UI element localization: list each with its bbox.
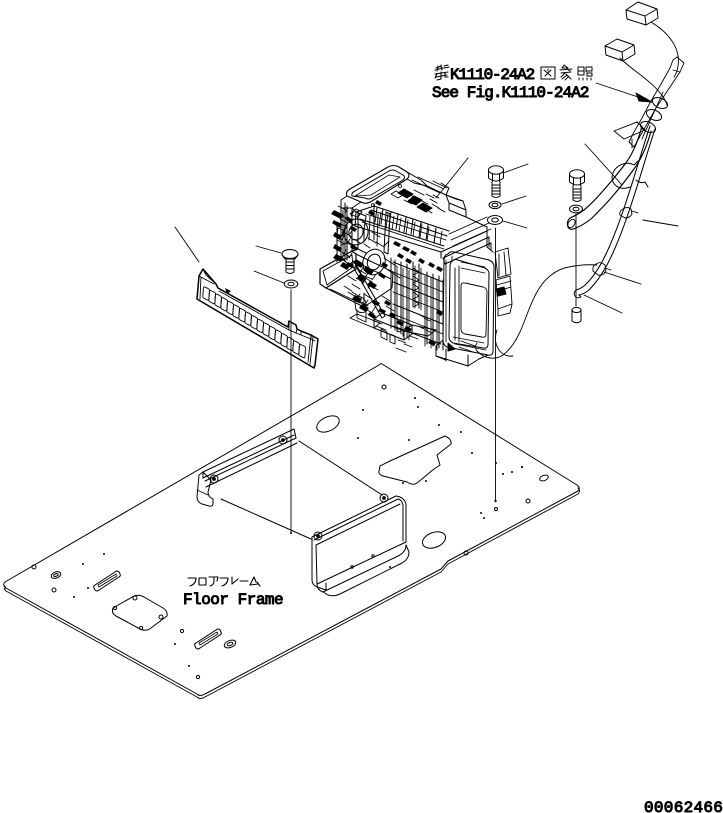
svg-text:See Fig.K1110-24A2: See Fig.K1110-24A2 bbox=[432, 84, 589, 102]
svg-text:K1110-24A2: K1110-24A2 bbox=[450, 66, 535, 84]
svg-text:Floor Frame: Floor Frame bbox=[183, 591, 283, 609]
svg-text:00062466: 00062466 bbox=[644, 799, 723, 813]
